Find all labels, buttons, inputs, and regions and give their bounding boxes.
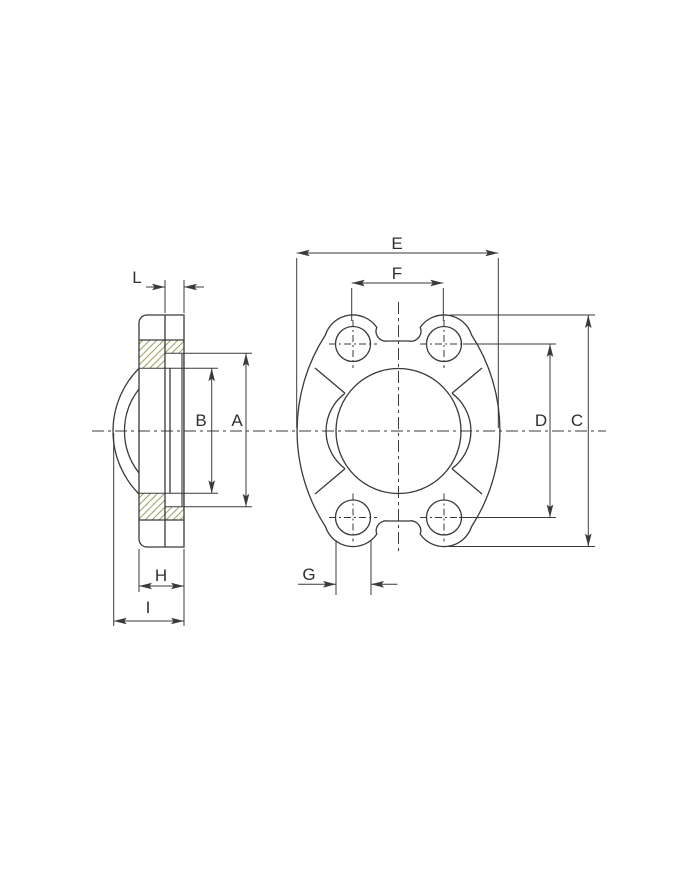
side-view: A B L H I xyxy=(113,268,252,626)
dim-label-a: A xyxy=(231,411,243,430)
chamfer-line-bottom-left xyxy=(315,469,345,494)
dim-label-b: B xyxy=(195,411,206,430)
hatch-area xyxy=(139,353,165,368)
hatch-area xyxy=(139,340,184,353)
dim-label-e: E xyxy=(391,234,402,253)
hatch-area xyxy=(139,507,184,520)
dim-label-l: L xyxy=(132,268,141,287)
dim-label-c: C xyxy=(571,411,583,430)
front-view-dimensions: E F C D G xyxy=(297,234,595,595)
hatch-area xyxy=(139,493,165,506)
dim-label-d: D xyxy=(535,411,547,430)
dim-label-g: G xyxy=(302,565,315,584)
flange-technical-drawing: A B L H I xyxy=(0,0,700,869)
chamfer-line-top-right xyxy=(452,368,482,393)
dim-label-f: F xyxy=(392,264,402,283)
chamfer-line-top-left xyxy=(315,368,345,393)
dim-label-i: I xyxy=(146,598,151,617)
dim-label-h: H xyxy=(155,566,167,585)
chamfer-line-bottom-right xyxy=(452,469,482,494)
drawing-canvas: A B L H I xyxy=(0,0,700,869)
front-view: E F C D G xyxy=(297,234,595,595)
